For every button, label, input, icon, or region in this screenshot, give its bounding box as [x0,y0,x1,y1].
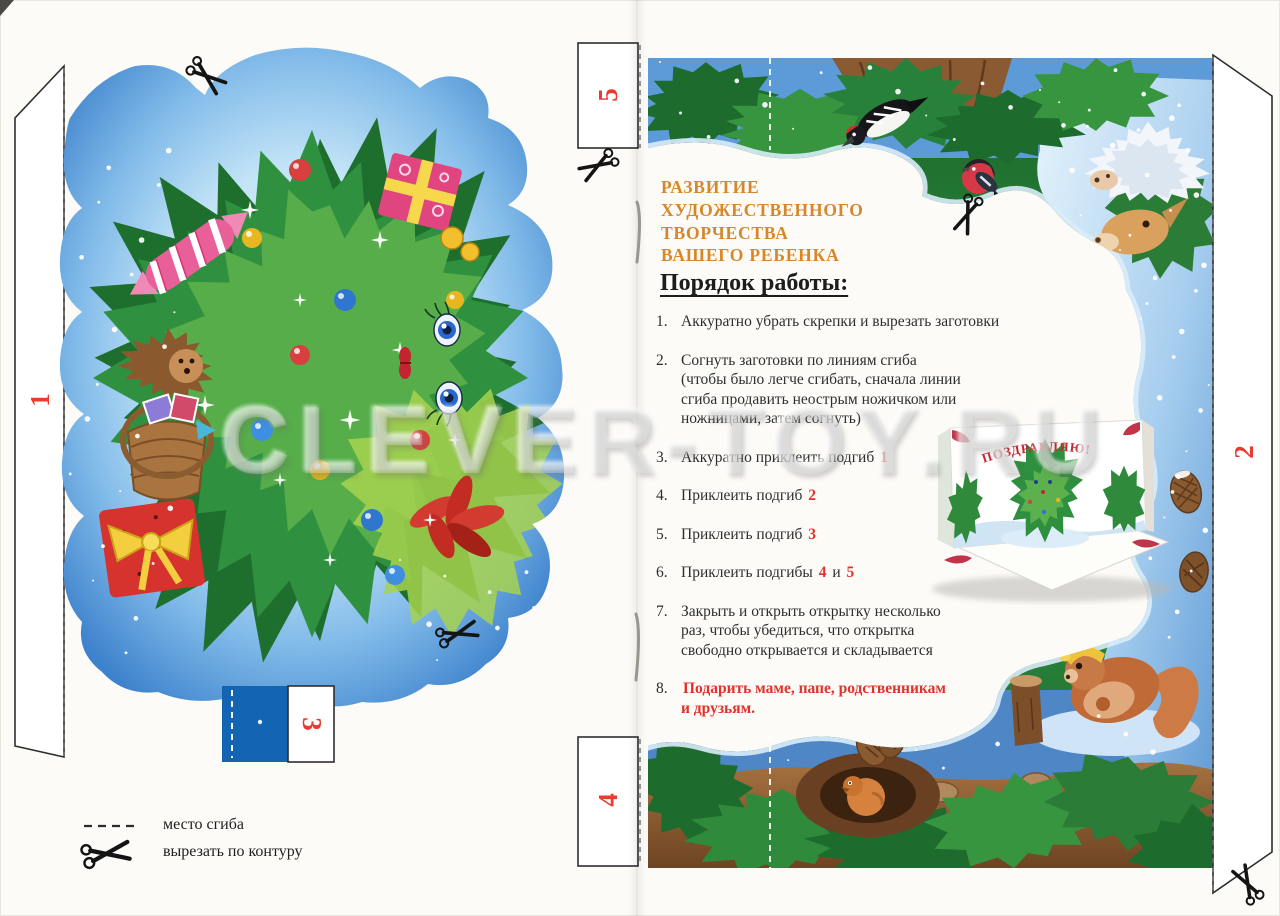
instruction-item: 2.Согнуть заготовки по линиям сгиба (что… [656,351,1004,429]
scan-corner-mark [0,0,14,16]
instruction-item: 8.Подарить маме, папе, родственникам и д… [656,679,1004,718]
scissors-icon [578,147,620,182]
instruction-item: 7.Закрыть и открыть открытку несколько р… [656,602,1004,661]
instruction-item: 3.Аккуратно приклеить подгиб 1 [656,448,1004,468]
instruction-item: 5.Приклеить подгиб 3 [656,525,1004,545]
tab-number-1: 1 [24,387,56,413]
legend-fold-label: место сгиба [163,816,244,834]
craft-sheet-scan: ПОЗДРАВЛЯЮ! РАЗВИТИЕ ХУДОЖЕСТВЕННОГО ТВО… [0,0,1280,916]
tab-number-4: 4 [592,787,624,813]
instruction-item: 1.Аккуратно убрать скрепки и вырезать за… [656,312,1004,332]
legend-scissors-icon [81,839,130,868]
tab-number-3: 3 [296,711,328,737]
instruction-item: 4.Приклеить подгиб 2 [656,486,1004,506]
fold-tab-2 [1213,55,1272,893]
instructions-list: 1.Аккуратно убрать скрепки и вырезать за… [656,312,1004,737]
gift-box-bottom [98,498,205,599]
heading-development: РАЗВИТИЕ ХУДОЖЕСТВЕННОГО ТВОРЧЕСТВА ВАШЕ… [661,176,981,267]
sheet-artwork: ПОЗДРАВЛЯЮ! [0,0,1280,916]
instruction-item: 6.Приклеить подгибы 4 и 5 [656,563,1004,583]
tab-number-2: 2 [1228,439,1260,465]
page-seam [628,0,646,916]
tree-lips [399,347,411,379]
legend-cut-label: вырезать по контуру [163,843,303,861]
stump [1010,675,1043,746]
instructions-title: Порядок работы: [660,270,848,297]
tab-number-5: 5 [592,82,624,108]
